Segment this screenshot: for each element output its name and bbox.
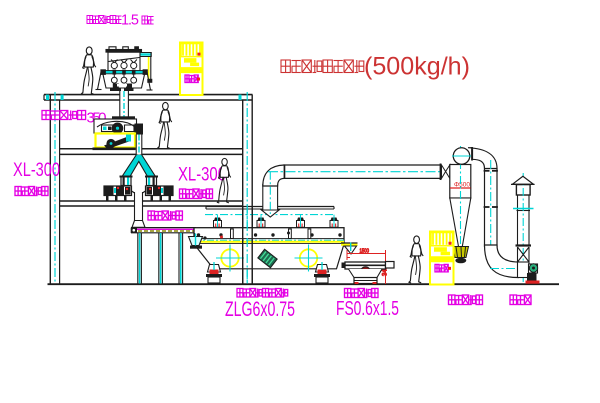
svg-text:1.5: 1.5: [121, 13, 139, 29]
svg-text:XL-300: XL-300: [13, 160, 60, 181]
svg-text:Φ500: Φ500: [454, 182, 470, 189]
svg-text:(500kg/h): (500kg/h): [364, 53, 470, 81]
svg-text:1500: 1500: [360, 248, 370, 254]
svg-text:ZLG6x0.75: ZLG6x0.75: [225, 298, 295, 321]
svg-text:FS0.6x1.5: FS0.6x1.5: [336, 297, 399, 320]
svg-text:XL-300: XL-300: [178, 165, 226, 186]
